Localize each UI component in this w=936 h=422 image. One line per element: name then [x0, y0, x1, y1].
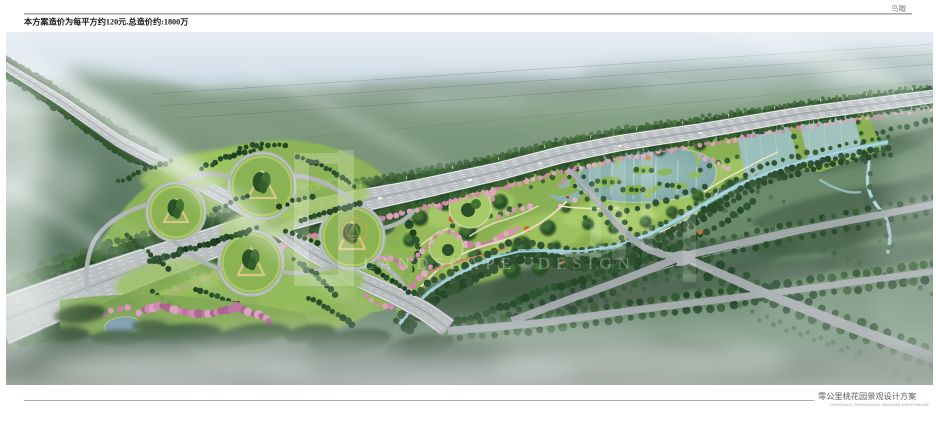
- svg-text:零公里桃花园景观设计方案: 零公里桃花园景观设计方案: [818, 391, 916, 401]
- svg-text:本方案造价为每平方约120元.总造价约:1800万: 本方案造价为每平方约120元.总造价约:1800万: [24, 17, 188, 27]
- svg-text:LINGGONGLI TAOHUAYUAN JINGGUAN: LINGGONGLI TAOHUAYUAN JINGGUAN SHEJI FAN…: [830, 403, 929, 407]
- svg-text:LANDSCAPE DESIGN: LANDSCAPE DESIGN: [363, 254, 636, 273]
- svg-text:鸟瞰: 鸟瞰: [891, 3, 906, 13]
